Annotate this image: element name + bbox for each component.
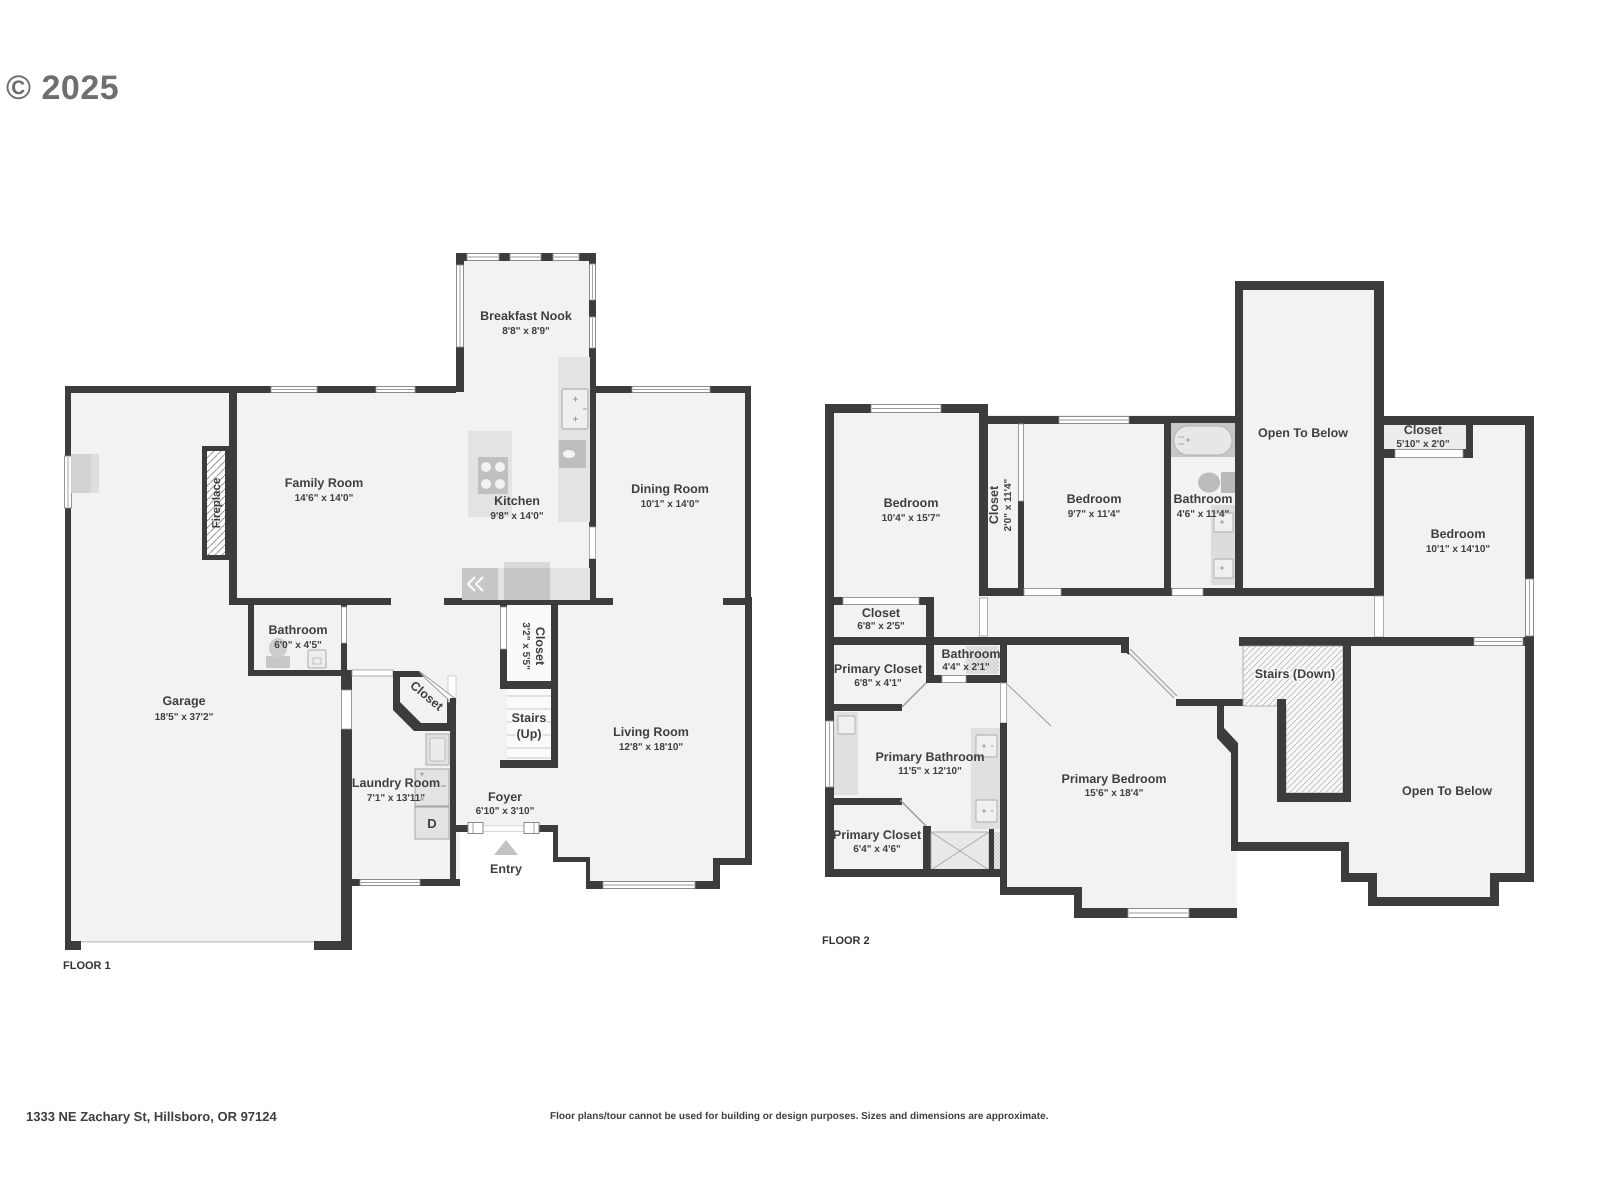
svg-text:11'5" x 12'10": 11'5" x 12'10"	[898, 766, 962, 777]
svg-text:3'2" x 5'5": 3'2" x 5'5"	[520, 622, 531, 670]
svg-text:Closet: Closet	[862, 606, 901, 620]
svg-text:14'6" x 14'0": 14'6" x 14'0"	[295, 493, 354, 504]
svg-text:Entry: Entry	[490, 862, 522, 876]
svg-text:Closet: Closet	[987, 485, 1001, 524]
svg-text:Bathroom: Bathroom	[268, 623, 327, 637]
svg-text:Closet: Closet	[1404, 423, 1443, 437]
svg-text:5'10" x 2'0": 5'10" x 2'0"	[1396, 439, 1449, 450]
svg-text:Breakfast Nook: Breakfast Nook	[480, 309, 572, 323]
svg-text:Bedroom: Bedroom	[1431, 527, 1486, 541]
svg-text:4'6" x 11'4": 4'6" x 11'4"	[1177, 509, 1230, 520]
svg-text:Fireplace: Fireplace	[211, 478, 223, 529]
svg-text:7'1" x 13'11": 7'1" x 13'11"	[367, 793, 425, 804]
svg-text:15'6" x 18'4": 15'6" x 18'4"	[1085, 788, 1144, 799]
svg-text:Primary Bathroom: Primary Bathroom	[875, 750, 984, 764]
svg-text:6'0" x 4'5": 6'0" x 4'5"	[274, 640, 322, 651]
svg-text:Garage: Garage	[162, 694, 205, 708]
svg-text:Laundry Room: Laundry Room	[352, 776, 440, 790]
svg-text:6'4" x 4'6": 6'4" x 4'6"	[853, 844, 901, 855]
svg-text:Floor plans/tour cannot be use: Floor plans/tour cannot be used for buil…	[550, 1111, 1049, 1122]
svg-text:Foyer: Foyer	[488, 790, 522, 804]
svg-text:Bathroom: Bathroom	[941, 647, 1000, 661]
svg-text:Stairs (Down): Stairs (Down)	[1255, 667, 1336, 681]
svg-text:6'8" x 2'5": 6'8" x 2'5"	[857, 621, 905, 632]
svg-text:Dining Room: Dining Room	[631, 482, 709, 496]
svg-text:Family Room: Family Room	[285, 476, 364, 490]
svg-text:Open To Below: Open To Below	[1402, 784, 1492, 798]
svg-text:Bathroom: Bathroom	[1173, 492, 1232, 506]
svg-text:Primary Bedroom: Primary Bedroom	[1062, 772, 1167, 786]
svg-text:18'5" x 37'2": 18'5" x 37'2"	[155, 712, 214, 723]
svg-text:10'1" x 14'10": 10'1" x 14'10"	[1426, 544, 1491, 555]
svg-text:Stairs: Stairs	[512, 711, 547, 725]
svg-text:Closet: Closet	[533, 627, 547, 666]
svg-text:Living Room: Living Room	[613, 725, 689, 739]
svg-text:(Up): (Up)	[517, 727, 542, 741]
svg-text:Kitchen: Kitchen	[494, 494, 540, 508]
svg-text:6'10" x 3'10": 6'10" x 3'10"	[476, 806, 535, 817]
svg-text:Bedroom: Bedroom	[884, 496, 939, 510]
svg-text:FLOOR 2: FLOOR 2	[822, 935, 870, 947]
svg-text:12'8" x 18'10": 12'8" x 18'10"	[619, 742, 684, 753]
svg-text:D: D	[427, 816, 436, 831]
svg-text:2'0" x 11'4": 2'0" x 11'4"	[1003, 478, 1014, 531]
svg-text:Primary Closet: Primary Closet	[833, 828, 922, 842]
svg-text:Open To Below: Open To Below	[1258, 426, 1348, 440]
svg-text:10'1" x 14'0": 10'1" x 14'0"	[641, 499, 700, 510]
svg-text:Primary Closet: Primary Closet	[834, 662, 923, 676]
svg-text:© 2025: © 2025	[6, 69, 119, 107]
svg-text:9'8" x 14'0": 9'8" x 14'0"	[490, 511, 543, 522]
svg-text:9'7" x 11'4": 9'7" x 11'4"	[1068, 509, 1121, 520]
svg-text:10'4" x 15'7": 10'4" x 15'7"	[882, 513, 941, 524]
svg-text:FLOOR 1: FLOOR 1	[63, 960, 111, 972]
svg-text:8'8" x 8'9": 8'8" x 8'9"	[502, 326, 550, 337]
svg-text:4'4" x 2'1": 4'4" x 2'1"	[942, 662, 990, 673]
svg-text:1333 NE Zachary St, Hillsboro,: 1333 NE Zachary St, Hillsboro, OR 97124	[26, 1109, 277, 1124]
svg-text:6'8" x 4'1": 6'8" x 4'1"	[854, 678, 902, 689]
svg-text:Bedroom: Bedroom	[1067, 492, 1122, 506]
